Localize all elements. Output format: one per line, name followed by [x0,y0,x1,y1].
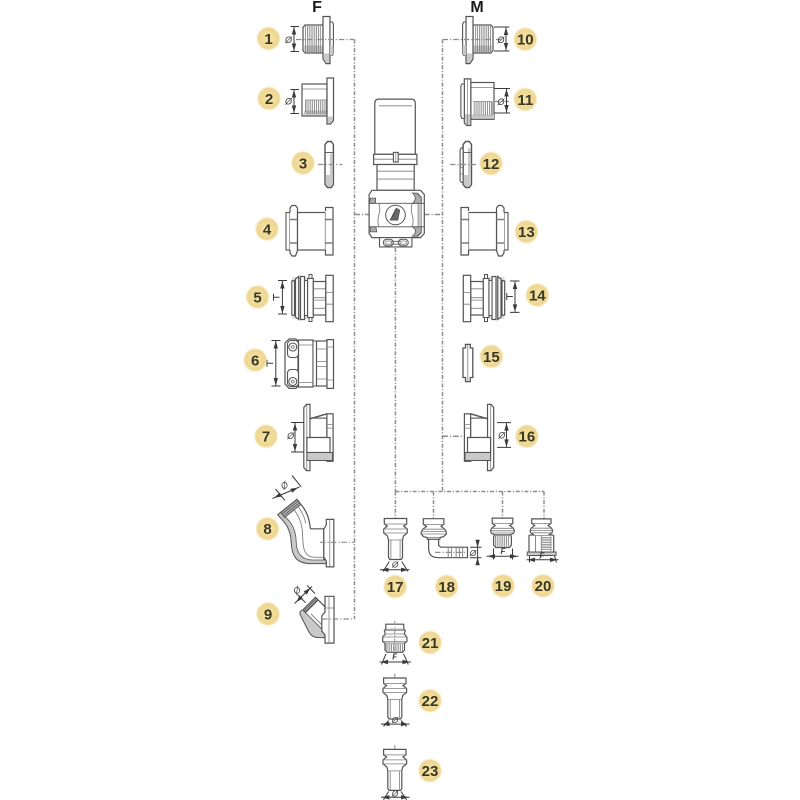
svg-text:4: 4 [263,221,272,238]
svg-text:7: 7 [262,429,270,446]
svg-text:2: 2 [265,91,273,108]
svg-text:1: 1 [264,31,272,48]
svg-text:15: 15 [483,349,500,366]
svg-text:22: 22 [422,693,439,710]
svg-text:3: 3 [299,155,307,172]
svg-text:21: 21 [422,635,439,652]
svg-text:Ø: Ø [496,97,505,107]
svg-text:Ø: Ø [286,431,295,441]
svg-text:14: 14 [529,288,546,305]
svg-text:18: 18 [438,579,455,596]
svg-text:13: 13 [518,224,535,241]
svg-text:Ø: Ø [284,96,293,106]
svg-text:5: 5 [253,289,261,306]
svg-text:Ø: Ø [284,35,293,45]
svg-text:M: M [470,0,483,16]
svg-text:20: 20 [535,578,552,595]
svg-text:11: 11 [517,92,533,109]
svg-text:10: 10 [517,32,534,49]
svg-text:F: F [312,0,322,16]
svg-text:12: 12 [483,156,500,173]
svg-text:17: 17 [387,579,404,596]
svg-text:8: 8 [263,521,271,538]
svg-text:9: 9 [264,606,272,623]
svg-text:23: 23 [422,763,439,780]
svg-text:Ø: Ø [497,430,506,440]
svg-text:Ø: Ø [496,35,505,45]
svg-text:19: 19 [495,578,512,595]
svg-text:16: 16 [519,429,536,446]
svg-text:6: 6 [251,352,259,369]
